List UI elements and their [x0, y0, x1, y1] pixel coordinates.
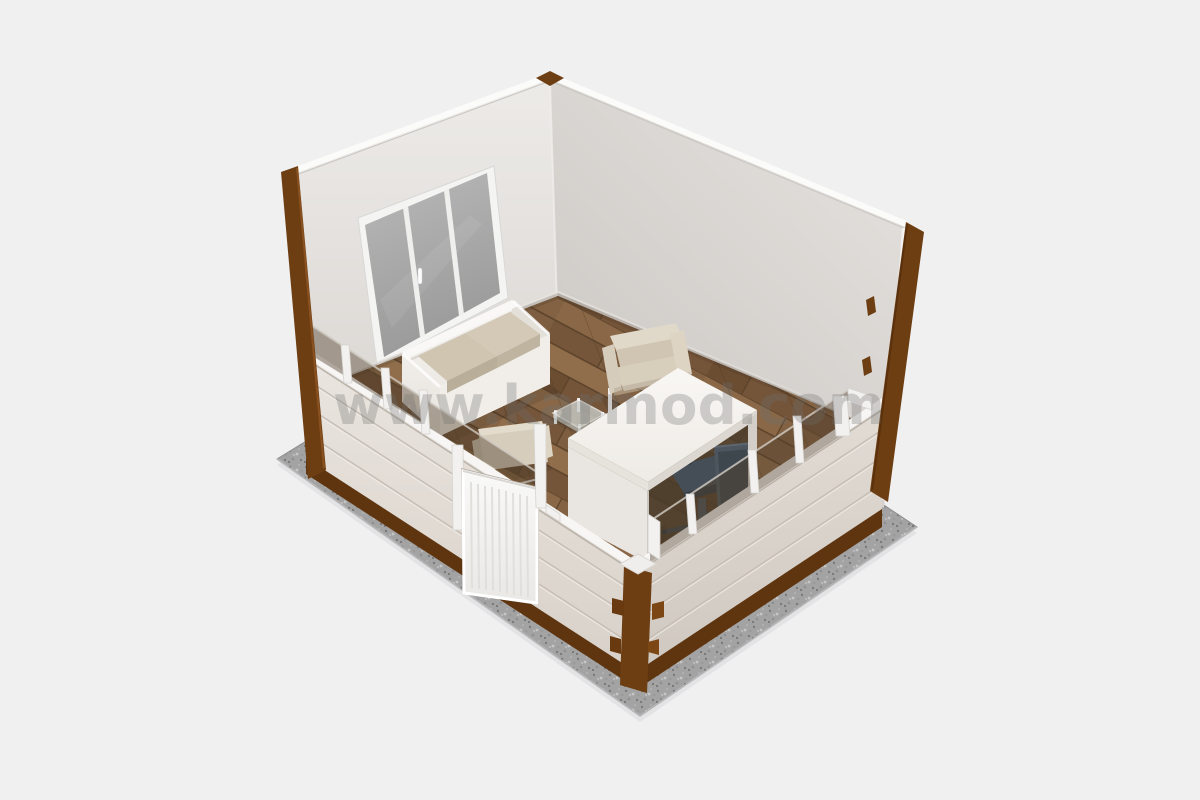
watermark-text: www.karmod.com	[333, 374, 885, 437]
render-canvas: www.karmod.com	[0, 0, 1200, 800]
post-body	[620, 565, 652, 693]
window-handle	[418, 268, 422, 284]
post-notch	[610, 636, 621, 654]
post-notch	[652, 601, 664, 620]
post-notch	[612, 598, 624, 616]
entrance-door	[461, 468, 539, 605]
render-stage: www.karmod.com	[0, 0, 1200, 800]
corner-jamb	[648, 514, 660, 560]
